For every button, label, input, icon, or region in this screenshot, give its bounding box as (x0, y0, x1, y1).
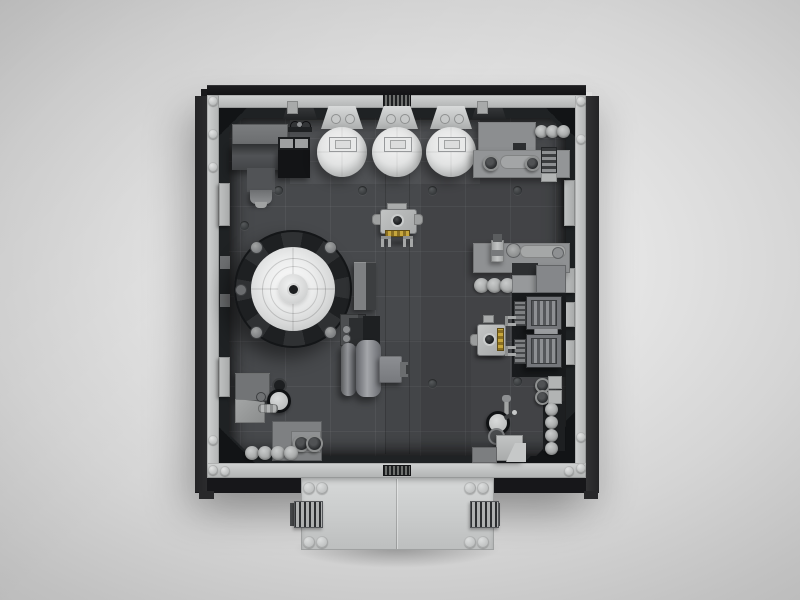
station-bottom-left (232, 369, 332, 464)
br-barrel (545, 429, 558, 442)
pump-machine-center (336, 313, 412, 401)
wall-tab-top-b (477, 101, 488, 114)
valve-bar (288, 127, 312, 132)
reactor-ring-stud (250, 241, 263, 254)
bl-hose (258, 404, 278, 413)
rail-stud (576, 463, 586, 473)
generator-hose (247, 168, 275, 192)
frame-foot-right (584, 491, 598, 499)
bench2-bar-knob (552, 247, 564, 259)
sill-stud (220, 466, 230, 476)
br-console-box (548, 376, 562, 389)
spherical-tank (372, 106, 422, 180)
generator-foot-cap (255, 202, 267, 208)
reactor-ring-stud-dim (235, 284, 247, 296)
bench2-dial (506, 243, 521, 258)
lego-room-render (0, 0, 800, 600)
rail-stud (576, 134, 586, 144)
tank-hatch-inner (335, 140, 351, 149)
tank-hatch (384, 137, 412, 152)
engine-ribs (531, 300, 557, 326)
br-pad-left (472, 447, 497, 463)
bench-upper-block (478, 122, 536, 152)
station-bottom-right (470, 372, 575, 465)
reactor-console (354, 262, 376, 310)
rail-stud (576, 96, 586, 106)
droid-claw-right (403, 236, 413, 247)
bench-bar-pot (525, 156, 540, 171)
rail-stud (208, 162, 218, 172)
floor-stud (513, 186, 522, 195)
workbench-top-right (471, 118, 573, 186)
bench-roller-cap (541, 173, 557, 182)
pump-cylinder-right (356, 340, 381, 397)
wall-rail-right (575, 95, 586, 478)
funnel-clip (440, 114, 450, 124)
bench2-bottle-cap (493, 234, 502, 242)
rail-stud (576, 432, 586, 442)
droid-top-knob (483, 315, 494, 323)
bench-canister (557, 125, 570, 138)
tank-funnel (321, 106, 363, 129)
platform-vent-grille-left (294, 501, 323, 528)
valve-pin (297, 122, 302, 127)
bench-dark-tile (513, 143, 526, 150)
droid-eye (483, 333, 496, 346)
funnel-clip (400, 114, 410, 124)
bench2-bottle-band (491, 250, 504, 256)
bl-barrel (284, 446, 298, 460)
funnel-clip (454, 114, 464, 124)
tank-hatch-inner (390, 140, 406, 149)
tank-funnel (430, 106, 472, 129)
pilaster-left-upper (219, 183, 230, 226)
rail-stud (208, 129, 218, 139)
droid-claw-top (505, 316, 516, 326)
bl-barrel (245, 446, 259, 460)
floor-stud (428, 379, 437, 388)
tank-hatch (438, 137, 466, 152)
platform-stud (464, 482, 476, 494)
funnel-clip (331, 114, 341, 124)
bl-knob (256, 392, 266, 402)
wall-outer-right (586, 96, 599, 493)
generator-top-left (230, 118, 314, 210)
generator-control-tiles (278, 137, 310, 150)
droid-right (466, 312, 520, 362)
wall-outer-left (195, 96, 207, 492)
droid-claw-bottom (505, 346, 516, 356)
bench-pot (483, 155, 499, 171)
pump-duct (379, 356, 402, 383)
wall-rail-left (207, 95, 219, 478)
platform-stud (464, 536, 476, 548)
reactor-center-port (289, 285, 298, 294)
funnel-clip (386, 114, 396, 124)
engine-unit-1 (526, 296, 562, 330)
engine-ribs (531, 338, 557, 364)
platform-stud (316, 536, 328, 548)
pump-valve-knob (342, 325, 351, 334)
tank-funnel (376, 106, 418, 129)
tank-sphere (317, 127, 367, 177)
bench2-dark-hood (512, 263, 538, 275)
br-pole-knob (502, 395, 511, 402)
br-lever-knob (512, 410, 517, 415)
bl-roller (306, 435, 323, 452)
platform-center-seam-highlight (397, 479, 398, 549)
droid-gold-tread (497, 328, 504, 351)
generator-valve (288, 119, 314, 135)
tank-sphere (372, 127, 422, 177)
reactor-ring-stud (324, 241, 337, 254)
br-console-box (548, 390, 562, 404)
wall-grille-bottom (383, 465, 411, 476)
rail-stud (208, 96, 218, 106)
workbench-mid-right (470, 230, 570, 296)
br-barrel (545, 416, 558, 429)
control-tile (295, 139, 308, 148)
platform-stud (477, 482, 489, 494)
droid-eye (391, 214, 404, 227)
droid-arm-left (372, 214, 381, 225)
pump-valve-knob (342, 334, 351, 343)
rail-stud (208, 435, 218, 445)
droid-arm-right (414, 214, 423, 225)
tank-sphere (426, 127, 476, 177)
platform-stud (303, 482, 315, 494)
reactor-ring-stud (250, 326, 263, 339)
droid-center (370, 200, 422, 250)
generator-black-box (278, 150, 310, 178)
floor-stud (428, 186, 437, 195)
tank-hatch (329, 137, 357, 152)
br-barrel (545, 403, 558, 416)
platform-stud (477, 536, 489, 548)
control-tile (280, 139, 293, 148)
platform-stud (303, 536, 315, 548)
spherical-tank (426, 106, 476, 180)
sill-stud (564, 466, 574, 476)
droid-claw-left (381, 236, 391, 247)
bl-barrel (258, 446, 272, 460)
rail-stud (208, 465, 218, 475)
funnel-clip (345, 114, 355, 124)
pilaster-left-lower (219, 357, 230, 397)
pump-cylinder-left (341, 343, 356, 396)
wall-tab-top-a (287, 101, 298, 114)
floor-seam-band (385, 150, 410, 454)
frame-foot-left (199, 491, 214, 499)
pilaster-right-upper (564, 180, 575, 226)
platform-vent-grille-right (470, 501, 499, 528)
droid-arm-left (470, 334, 478, 346)
engine-unit-2 (526, 334, 562, 368)
floor-stud (358, 186, 367, 195)
bench-roller (541, 147, 557, 175)
tank-hatch-inner (444, 140, 460, 149)
spherical-tank (317, 106, 367, 180)
br-barrel (545, 442, 558, 455)
bench2-side-unit (536, 265, 566, 293)
bl-barrel (271, 446, 285, 460)
pump-duct-tip (406, 365, 410, 374)
entry-platform (288, 478, 502, 550)
platform-stud (316, 482, 328, 494)
